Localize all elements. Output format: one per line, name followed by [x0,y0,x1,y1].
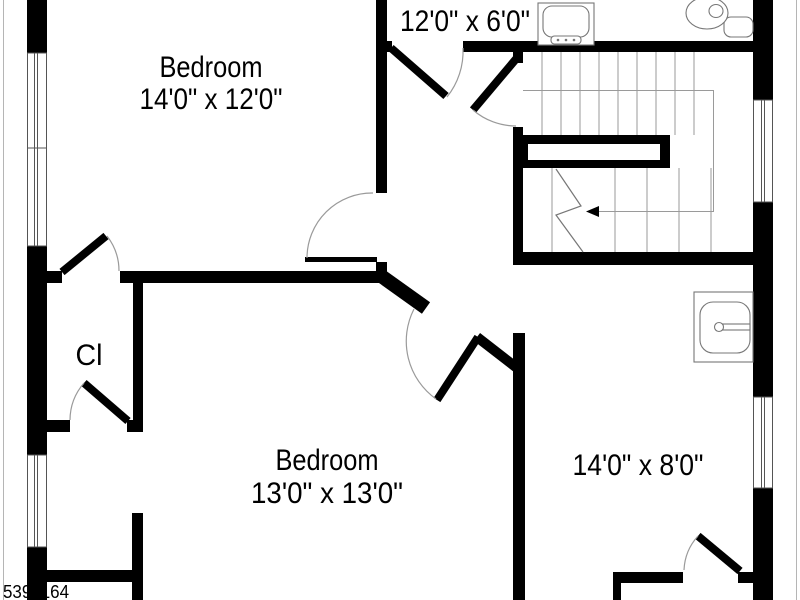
window [28,455,47,547]
door-arc [107,236,119,271]
wall-segment [613,572,621,600]
wall-segment [753,488,773,600]
window [28,53,47,246]
door-arc [406,309,436,399]
wall-segment [132,513,143,600]
wall-segment [43,420,70,432]
wall-segment [376,0,387,193]
stair-treads-upper [542,52,694,135]
angled-wall [477,337,517,368]
fixtures [538,0,753,362]
room-dims-right-room: 14'0" x 8'0" [573,449,704,482]
door-leaf [84,383,128,421]
door [305,193,377,262]
sink-icon [538,3,594,45]
window [754,397,773,488]
wall-segment [120,271,387,283]
room-label-bedroom1: Bedroom [160,51,263,84]
door-leaf [437,337,478,400]
door-leaf [62,236,106,272]
door [391,48,463,97]
wall-segment [47,570,143,582]
wall-segment [43,271,62,283]
stair-railing [523,135,670,168]
door-leaf [473,59,516,110]
room-label-bedroom2: Bedroom [276,444,379,477]
door-arc [447,48,463,97]
angled-wall [377,273,426,308]
door [70,383,128,421]
sink-icon [694,292,753,362]
door [473,59,516,126]
stair-treads-lower [552,168,711,252]
stairs-direction-arrow [586,206,713,217]
wall-segment [27,0,47,53]
door-arc [307,193,373,258]
wall-segment [133,271,143,432]
room-dims-top-room: 12'0" x 6'0" [400,5,530,38]
wall-segment [621,572,683,583]
door-leaf [698,536,740,571]
door [406,309,478,400]
wall-segment [463,41,753,52]
room-dims-bedroom2: 13'0" x 13'0" [251,477,403,510]
wall-segment [738,572,753,583]
door-arc [684,536,698,570]
room-label-closet: Cl [76,339,103,372]
watermark: 5398164 [3,582,69,600]
door-leaf [305,257,377,262]
wall-segment [753,0,773,100]
room-dims-bedroom1: 14'0" x 12'0" [140,83,283,116]
floor-plan: Bedroom 14'0" x 12'0" 12'0" x 6'0" Cl Be… [0,0,800,600]
stair-break-line [556,169,583,252]
wall-segment [753,202,773,397]
wall-segment [513,127,523,265]
door [684,536,740,571]
window [754,100,773,202]
door-arc [473,110,516,126]
door-leaf [391,48,446,96]
wall-segment [513,333,525,600]
toilet-icon [686,0,753,37]
door-arc [70,383,84,420]
door [62,236,119,272]
wall-segment [513,252,773,265]
floor-plan-drawing: Bedroom 14'0" x 12'0" 12'0" x 6'0" Cl Be… [0,0,800,600]
